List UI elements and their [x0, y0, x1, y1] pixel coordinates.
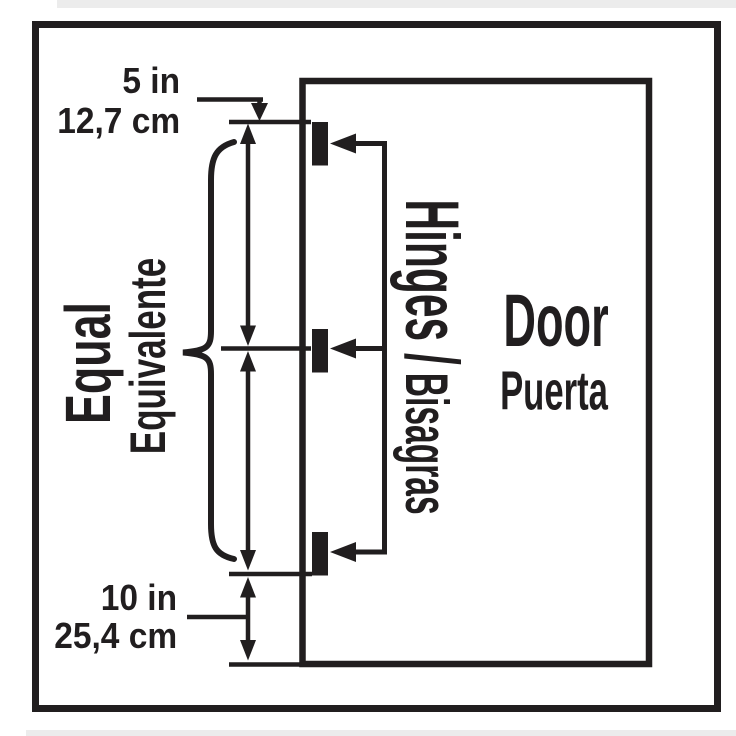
- equal-label-en: Equal: [56, 302, 120, 424]
- hinge-bottom: [312, 532, 328, 576]
- bottom-offset-metric-label: 25,4 cm: [54, 618, 177, 654]
- hinges-label-en: Hinges /: [389, 199, 474, 365]
- hinge-arrowhead-top-icon: [330, 134, 356, 154]
- hinge-arrowhead-bottom-icon: [330, 542, 356, 562]
- equal-span-upper-arrowhead-down-icon: [240, 326, 256, 347]
- top-offset-metric-label: 12,7 cm: [57, 103, 180, 139]
- bottom-offset-arrowhead-up-icon: [240, 577, 256, 598]
- hinge-placement-diagram: 5 in 12,7 cm 10 in 25,4 cm Equal Equival…: [0, 0, 736, 736]
- hinge-middle: [312, 329, 328, 373]
- bottom-offset-arrowhead-down-icon: [240, 640, 256, 661]
- equal-span-lower-arrowhead-down-icon: [240, 550, 256, 571]
- bottom-offset-imperial-label: 10 in: [101, 580, 177, 616]
- top-offset-imperial-label: 5 in: [122, 63, 180, 99]
- door-label-en: Door: [503, 284, 608, 358]
- door-label-es: Puerta: [500, 364, 608, 419]
- equal-span-upper-arrowhead-up-icon: [240, 124, 256, 145]
- hinge-arrowhead-middle-icon: [330, 339, 356, 359]
- hinges-label: Hinges /Bisagras: [393, 199, 469, 514]
- equal-span-lower-arrowhead-up-icon: [240, 351, 256, 372]
- hinges-label-es: Bisagras: [393, 373, 460, 515]
- equal-label-es: Equivalente: [123, 258, 173, 454]
- top-offset-arrowhead-icon: [251, 103, 268, 121]
- hinge-top: [312, 122, 328, 166]
